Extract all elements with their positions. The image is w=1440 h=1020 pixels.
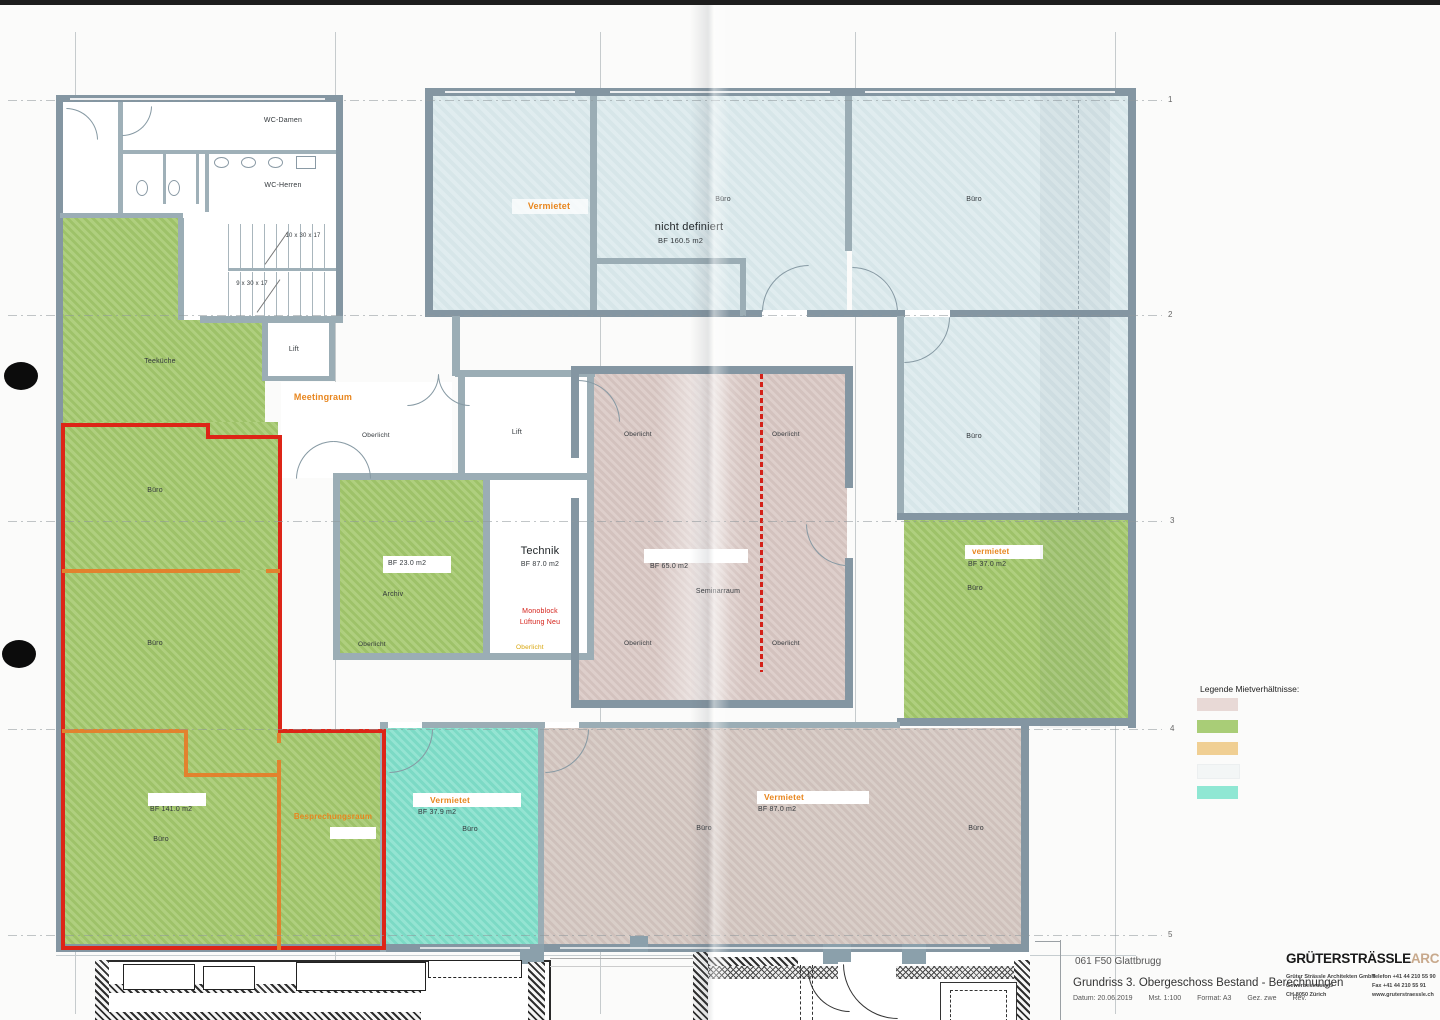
grid-row-number: 1: [1168, 95, 1172, 104]
red-boundary: [206, 435, 282, 439]
wall-segment: [333, 473, 594, 480]
architect-fax: Fax +41 44 210 55 91: [1372, 982, 1436, 991]
red-boundary: [382, 729, 386, 950]
room-label-lift: Lift: [512, 429, 522, 436]
legend-swatch-cyan: [1197, 786, 1238, 799]
red-boundary: [278, 435, 282, 733]
wc-sink: [268, 157, 283, 168]
detail-left-wall: [95, 960, 109, 1020]
detail-right-dashed-box: [950, 990, 1007, 1020]
grid-line-horizontal: [8, 521, 1162, 522]
room-bf-bottom: BF 87.0 m2: [758, 806, 796, 813]
orange-partition: [184, 773, 280, 777]
red-boundary: [61, 946, 386, 950]
wall-segment: [845, 558, 853, 708]
red-boundary: [61, 423, 65, 950]
oberlicht-label: Oberlicht: [362, 432, 390, 439]
room-label-buero: Büro: [966, 433, 982, 440]
frame-corner-line: [1060, 940, 1061, 1020]
wall-segment: [845, 96, 852, 251]
detail-connector-line: [550, 966, 693, 967]
room-label-buero: Büro: [966, 196, 982, 203]
architect-name: GRÜTERSTRÄSSLE: [1286, 951, 1411, 966]
staircase-run-lower: [228, 272, 336, 318]
wall-segment: [740, 258, 746, 316]
grid-line-horizontal: [8, 100, 1162, 101]
wall-segment: [178, 218, 184, 320]
architect-web: www.gruterstraessle.ch: [1372, 991, 1436, 1000]
room-buero-bottom-mid: [544, 728, 1022, 948]
wall-segment: [333, 480, 340, 660]
window-strip: [445, 91, 575, 93]
tenancy-label-vermietet: Vermietet: [528, 201, 570, 211]
grid-row-number: 3: [1170, 516, 1174, 525]
grid-line-horizontal: [8, 315, 1162, 316]
label-strip: [148, 793, 206, 806]
wc-basin: [296, 156, 316, 169]
wall-segment: [262, 376, 335, 381]
detail-left-wall: [528, 962, 545, 1020]
meta-scale: Mst. 1:100: [1149, 995, 1182, 1002]
wall-segment: [425, 88, 433, 316]
wall-segment: [538, 726, 544, 948]
orange-partition: [277, 733, 281, 743]
architect-contact: Telefon +41 44 210 55 90 Fax +41 44 210 …: [1372, 973, 1436, 999]
staircase-landing-line: [228, 268, 336, 271]
oberlicht-label: Oberlicht: [624, 640, 652, 647]
room-label-buero: Büro: [147, 487, 163, 494]
project-number: 061 F50 Glattbrugg: [1075, 956, 1161, 967]
wc-sink: [214, 157, 229, 168]
detail-left-wall: [109, 1012, 421, 1020]
oberlicht-label: Oberlicht: [358, 641, 386, 648]
oberlicht-label: Oberlicht: [624, 431, 652, 438]
room-label-technik: Technik: [521, 545, 560, 557]
wc-partition: [196, 154, 199, 204]
tenancy-label-vermietet: vermietet: [972, 547, 1009, 556]
monoblock-note: Monoblock: [522, 608, 558, 615]
architect-phone: Telefon +41 44 210 55 90: [1372, 973, 1436, 982]
architect-logo: GRÜTERSTRÄSSLEARCHITEKTEN: [1286, 951, 1440, 966]
architect-suffix: ARCHITEKTEN: [1411, 951, 1440, 966]
room-label-besprechungsraum: Besprechungsraum: [294, 812, 372, 821]
room-label-teekueche: Teeküche: [144, 358, 176, 365]
label-strip: [330, 827, 376, 839]
oberlicht-label: Oberlicht: [772, 640, 800, 647]
room-bf-right-green: BF 37.0 m2: [968, 561, 1006, 568]
architect-street: Gewerbestrasse 9: [1286, 982, 1375, 991]
legend-swatch-gruen: [1197, 720, 1238, 733]
wall-segment: [336, 95, 343, 323]
wall-segment: [571, 498, 579, 708]
room-label-wc-damen: WC-Damen: [264, 117, 302, 124]
room-label-buero: Büro: [147, 640, 163, 647]
room-bf-seminar: BF 65.0 m2: [650, 563, 688, 570]
grid-row-number: 2: [1168, 310, 1172, 319]
tenancy-label-vermietet: Vermietet: [764, 792, 804, 802]
meta-date: Datum: 20.06.2019: [1073, 995, 1133, 1002]
wc-toilet: [136, 180, 148, 196]
room-label-buero: Büro: [967, 585, 983, 592]
grid-line-horizontal: [8, 729, 1162, 730]
orange-partition: [62, 569, 240, 573]
wc-toilet: [168, 180, 180, 196]
room-bf-archiv: BF 23.0 m2: [388, 560, 426, 567]
room-label-meetingraum: Meetingraum: [294, 392, 352, 402]
scan-shading-right: [1040, 88, 1110, 728]
room-label-wc-herren: WC-Herren: [264, 182, 301, 189]
wall-segment: [590, 96, 597, 310]
frame-corner-line: [1035, 941, 1061, 942]
orange-partition: [277, 760, 281, 950]
door-opening: [545, 722, 579, 728]
wc-partition: [163, 154, 166, 204]
grid-row-number: 4: [1170, 724, 1174, 733]
architect-address: Grüter Strässle Architekten GmbH Gewerbe…: [1286, 973, 1375, 999]
room-bf-bottom-left: BF 141.0 m2: [150, 806, 192, 813]
room-bf-technik: BF 87.0 m2: [521, 561, 559, 568]
fold-crease: [690, 0, 730, 1020]
meta-format: Format: A3: [1197, 995, 1231, 1002]
orange-partition: [266, 569, 280, 573]
detail-dashed-line: [800, 965, 801, 1020]
wall-segment: [1021, 726, 1029, 952]
hole-punch-bottom: [2, 640, 36, 668]
legend-title: Legende Mietverhältnisse:: [1200, 684, 1299, 694]
room-buero-left-2: [63, 570, 278, 730]
room-lift-2-hall: [465, 377, 587, 477]
column-stub: [630, 936, 648, 952]
wall-segment: [1128, 88, 1136, 728]
architect-city: CH-8050 Zürich: [1286, 991, 1375, 1000]
detail-connector-line: [550, 958, 693, 959]
legend-swatch-rosa: [1197, 698, 1238, 711]
drawing-meta: Datum: 20.06.2019 Mst. 1:100 Format: A3 …: [1073, 995, 1306, 1002]
wc-sink: [241, 157, 256, 168]
grid-row-number: 5: [1168, 930, 1172, 939]
monoblock-note: Lüftung Neu: [520, 619, 560, 626]
room-teekueche: [63, 320, 265, 424]
red-boundary: [61, 423, 210, 427]
floor-plan-scan: WC-Damen WC-Herren 10 x 30 x 17 9 x 30 x…: [0, 0, 1440, 1020]
stair-run-label: 10 x 30 x 17: [285, 233, 320, 239]
architect-firm: Grüter Strässle Architekten GmbH: [1286, 973, 1375, 982]
scan-top-edge: [0, 0, 1440, 5]
room-bf-cyan: BF 37.9 m2: [418, 809, 456, 816]
red-dashed-line: [760, 374, 763, 672]
room-label-buero: Büro: [462, 826, 478, 833]
wall-segment: [897, 316, 904, 520]
oberlicht-label-orange: Oberlicht: [516, 644, 544, 651]
oberlicht-label: Oberlicht: [772, 431, 800, 438]
tenancy-label-vermietet: Vermietet: [430, 795, 470, 805]
wall-segment: [262, 316, 268, 380]
room-label-archiv: Archiv: [383, 591, 404, 598]
window-strip: [560, 947, 990, 949]
meta-drawn: Gez. zwe: [1247, 995, 1276, 1002]
detail-left-box: [123, 964, 195, 990]
staircase-run-upper: [228, 224, 336, 268]
legend-swatch-weiss: [1197, 764, 1240, 779]
wall-segment: [383, 722, 900, 728]
hole-punch-top: [4, 362, 38, 390]
room-buero-bottom-left: [63, 730, 385, 948]
wall-segment: [333, 653, 594, 660]
orange-partition: [184, 729, 188, 777]
grid-line-horizontal: [8, 935, 1162, 936]
room-buero-left-1: [63, 422, 278, 572]
wall-segment: [483, 473, 490, 660]
wc-partition: [118, 150, 341, 154]
wall-segment: [329, 316, 335, 380]
wall-segment: [452, 316, 460, 376]
wall-segment: [200, 316, 343, 323]
detail-left-dashed-box: [428, 960, 522, 978]
detail-left-box: [203, 966, 255, 990]
door-opening: [388, 722, 422, 728]
room-label-lift: Lift: [289, 346, 299, 353]
room-teekueche-upper: [63, 218, 183, 322]
stair-run-label: 9 x 30 x 17: [236, 281, 268, 287]
room-label-buero: Büro: [153, 836, 169, 843]
window-strip: [420, 947, 530, 949]
legend-swatch-orange: [1197, 742, 1238, 755]
room-label-buero: Büro: [968, 825, 984, 832]
wall-segment: [845, 366, 853, 488]
wc-partition: [205, 154, 209, 212]
wall-segment: [60, 213, 183, 218]
detail-left-box: [296, 962, 426, 991]
